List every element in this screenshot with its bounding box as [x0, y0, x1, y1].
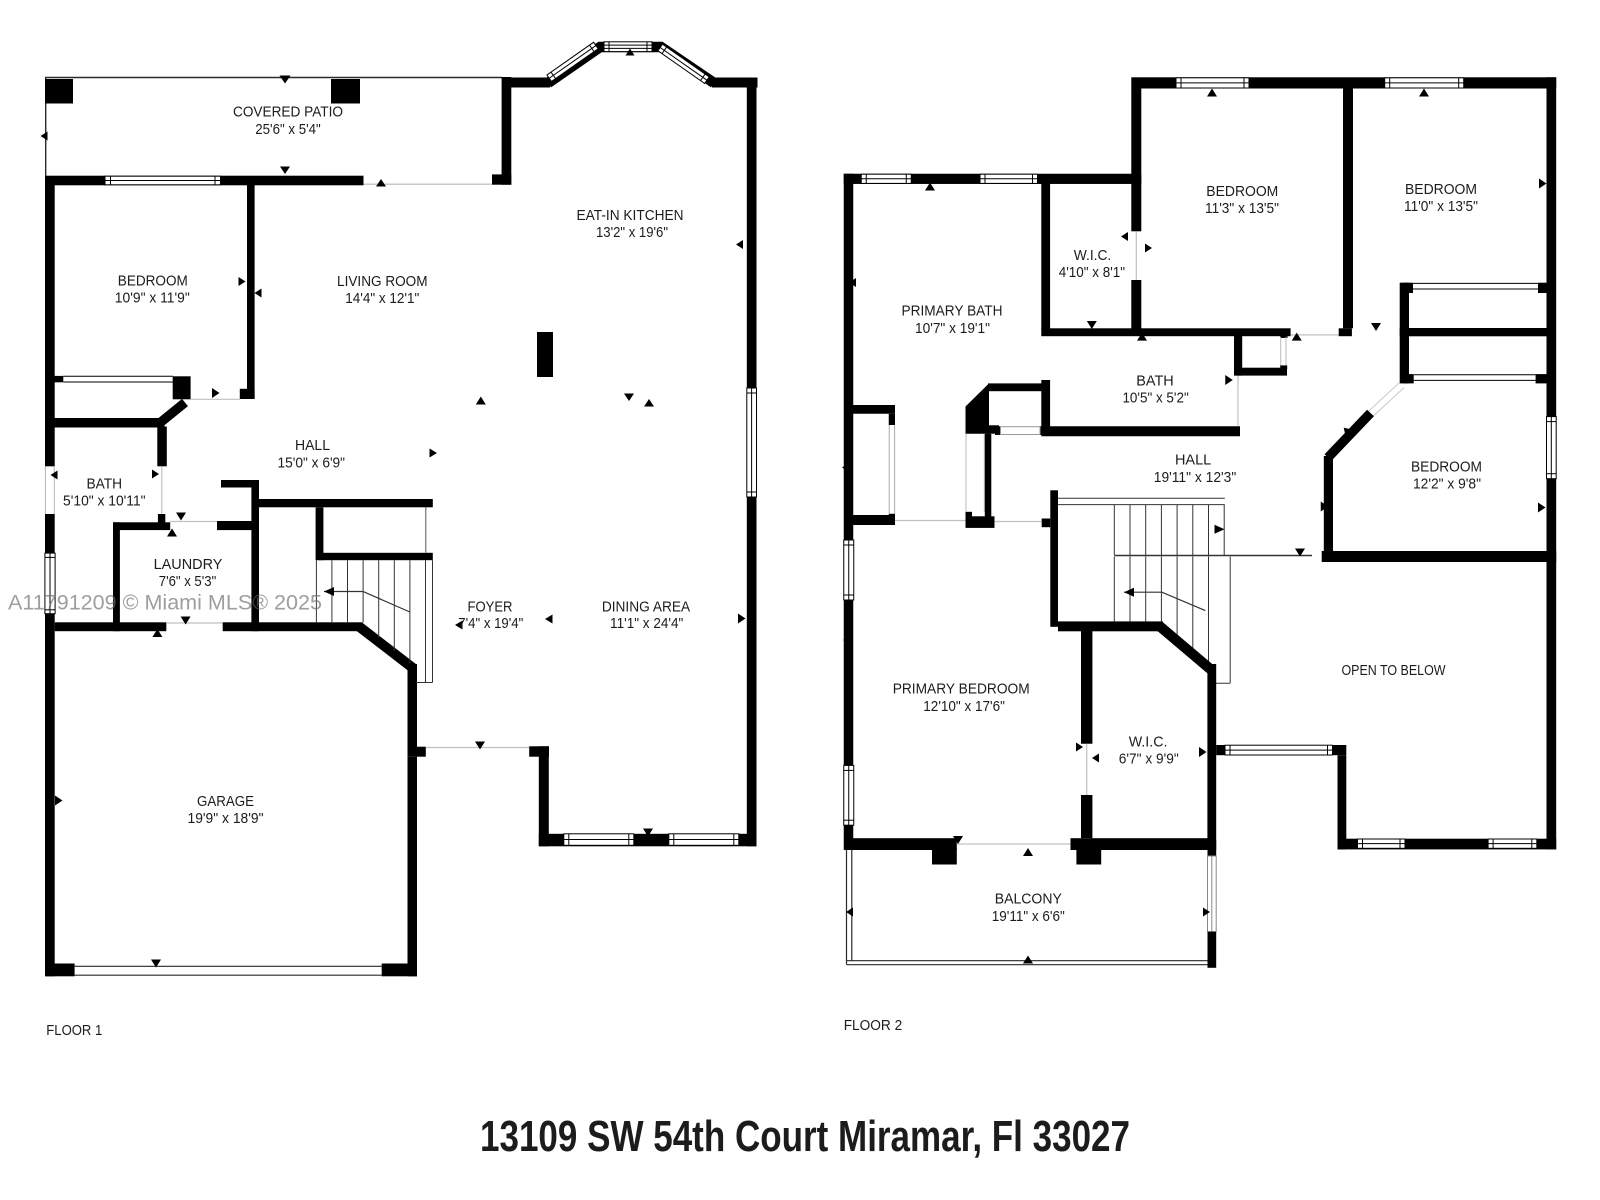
svg-text:BALCONY: BALCONY: [995, 891, 1062, 908]
svg-text:FLOOR 1: FLOOR 1: [46, 1023, 102, 1039]
svg-text:EAT-IN KITCHEN: EAT-IN KITCHEN: [577, 207, 684, 224]
svg-text:11'3" x 13'5": 11'3" x 13'5": [1205, 200, 1279, 217]
svg-text:7'6" x 5'3": 7'6" x 5'3": [159, 573, 217, 590]
svg-text:DINING AREA: DINING AREA: [602, 599, 690, 616]
svg-text:10'7" x 19'1": 10'7" x 19'1": [915, 320, 990, 337]
svg-text:BEDROOM: BEDROOM: [1405, 181, 1477, 198]
svg-text:12'2" x 9'8": 12'2" x 9'8": [1413, 476, 1481, 493]
svg-text:BEDROOM: BEDROOM: [118, 273, 188, 290]
svg-text:LIVING ROOM: LIVING ROOM: [337, 273, 428, 290]
svg-text:BEDROOM: BEDROOM: [1206, 183, 1278, 200]
svg-text:6'7" x 9'9": 6'7" x 9'9": [1119, 750, 1179, 767]
svg-text:4'10" x 8'1": 4'10" x 8'1": [1059, 264, 1125, 281]
svg-text:7'4" x 19'4": 7'4" x 19'4": [458, 615, 523, 632]
svg-text:OPEN TO BELOW: OPEN TO BELOW: [1342, 662, 1447, 679]
svg-text:10'9" x 11'9": 10'9" x 11'9": [115, 290, 190, 307]
svg-text:15'0" x 6'9": 15'0" x 6'9": [278, 454, 346, 471]
svg-text:W.I.C.: W.I.C.: [1074, 247, 1112, 264]
svg-text:PRIMARY BEDROOM: PRIMARY BEDROOM: [893, 681, 1030, 698]
svg-text:19'9" x 18'9": 19'9" x 18'9": [188, 810, 264, 827]
svg-text:PRIMARY BATH: PRIMARY BATH: [902, 303, 1003, 320]
svg-text:HALL: HALL: [1175, 452, 1211, 469]
svg-text:W.I.C.: W.I.C.: [1129, 734, 1168, 751]
svg-text:11'0" x 13'5": 11'0" x 13'5": [1404, 198, 1478, 215]
svg-text:19'11" x 6'6": 19'11" x 6'6": [992, 908, 1065, 925]
svg-text:BATH: BATH: [1136, 373, 1174, 390]
svg-text:LAUNDRY: LAUNDRY: [154, 556, 223, 573]
svg-text:25'6" x 5'4": 25'6" x 5'4": [255, 121, 321, 138]
svg-text:FOYER: FOYER: [468, 599, 513, 616]
svg-text:13'2" x 19'6": 13'2" x 19'6": [596, 224, 668, 241]
svg-text:A11791209 © Miami MLS® 2025: A11791209 © Miami MLS® 2025: [8, 590, 322, 614]
svg-text:5'10" x 10'11": 5'10" x 10'11": [63, 493, 146, 510]
svg-text:BEDROOM: BEDROOM: [1411, 459, 1482, 476]
svg-text:GARAGE: GARAGE: [197, 793, 254, 810]
svg-text:14'4" x 12'1": 14'4" x 12'1": [345, 290, 419, 307]
svg-text:10'5" x 5'2": 10'5" x 5'2": [1122, 389, 1188, 406]
svg-text:BATH: BATH: [86, 476, 122, 493]
svg-text:COVERED PATIO: COVERED PATIO: [233, 104, 343, 121]
svg-text:11'1" x 24'4": 11'1" x 24'4": [610, 615, 683, 632]
svg-text:19'11" x 12'3": 19'11" x 12'3": [1154, 469, 1237, 486]
svg-text:FLOOR 2: FLOOR 2: [844, 1018, 903, 1034]
svg-text:13109 SW 54th Court Miramar, F: 13109 SW 54th Court Miramar, Fl 33027: [480, 1112, 1130, 1161]
svg-text:HALL: HALL: [295, 437, 330, 454]
svg-text:12'10" x 17'6": 12'10" x 17'6": [923, 698, 1005, 715]
